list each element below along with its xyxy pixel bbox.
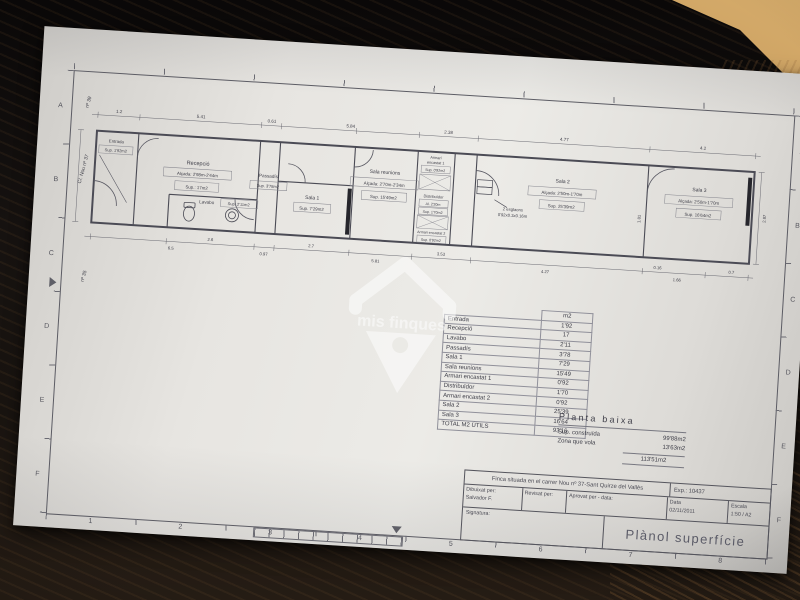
grid-letter-right-e: E [777,443,789,451]
dim-top-3: 0.61 [267,118,277,124]
dim-bottom-upper-2: 2.7 [308,243,315,248]
room-recepcio-name: Recepció [186,160,209,167]
street-name-label: C/. Nou nº 37 [77,154,91,185]
steps [476,180,509,208]
toilet-icon [183,202,195,221]
grid-letter-left-c: C [45,250,57,258]
grid-letter-left-f: F [31,470,43,478]
sink-icon [225,208,239,222]
dim-right-1: 2.87 [762,214,768,223]
drawing-sheet: A B C D E F A B C D E F 1 2 3 4 5 6 7 8 [13,26,800,574]
escala-value: 1:50 / A2 [730,510,767,520]
house-roof-icon [355,260,452,314]
dim-top-6: 4.77 [560,137,570,143]
grid-letter-right-a: A [796,149,800,157]
room-sala1-sup: Sup. 7'29m2 [299,206,324,213]
dim-bottom-upper-4: 0.16 [653,265,662,271]
grid-number-7: 7 [623,552,637,560]
room-armari2-name: Armari encastat 2 [417,230,445,236]
room-passadis-sup: Sup. 3'78m2 [257,183,280,189]
room-armari1-name1: Armari [430,156,442,161]
room-reunions-name: Sala reunions [369,169,400,177]
room-distribuidor-name: Distribuïdor [423,193,444,199]
escala-cell: Escala 1:50 / A2 [728,501,770,526]
planta-baixa-summary: Planta baixa Sup. construïda 99'88m2 Zon… [556,411,687,468]
dim-bottom-upper-1: 2.6 [207,237,214,242]
revisat-cell: Revisat per: [522,488,568,513]
grid-number-6: 6 [533,546,547,554]
grid-letter-left-b: B [50,176,62,184]
room-sala3-sup: Sup. 16'64m2 [684,212,712,219]
grid-letter-right-d: D [782,369,794,377]
room-sala1-name: Sala 1 [305,195,320,202]
dim-top-1: 1.2 [116,109,123,114]
dim-top-4: 5.84 [346,123,356,129]
grid-number-1: 1 [83,518,97,526]
sup-construida-label: Sup. construïda [558,429,600,438]
room-lavabo-name: Lavabo [199,199,215,205]
room-recepcio-sup: Sup.: 17m2 [185,184,208,190]
grid-letter-right-b: B [791,222,800,230]
room-lavabo-sup: Sup. 2'11m2 [228,201,251,207]
mis-finques-watermark: mis finques [332,241,471,399]
street-number-39: nº 39 [85,96,94,109]
fold-mark-bottom-icon [391,526,401,534]
zona-vola-label: Zona que vola [557,438,595,446]
revisat-label: Revisat per: [524,489,564,500]
grid-letter-right-f: F [773,517,785,525]
dibuixat-cell: Dibuixat per: Salvador F. [463,484,523,510]
grid-number-5: 5 [444,540,458,548]
dim-bottom-lower-1: 6.5 [168,245,175,250]
grid-number-8: 8 [713,557,727,565]
grid-letter-right-c: C [787,296,799,304]
fold-mark-left-icon [49,277,57,287]
grid-number-2: 2 [173,523,187,531]
grid-letter-left-a: A [54,102,66,110]
room-sala2-sup: Sup. 25'39m2 [548,203,576,210]
zona-vola-value: 13'63m2 [662,445,685,452]
dim-right-2: 1.81 [636,214,642,223]
room-armari1-name2: encastat 1 [427,160,445,165]
dim-top-2: 5.41 [197,114,207,120]
photo-of-floor-plan: A B C D E F A B C D E F 1 2 3 4 5 6 7 8 [0,0,800,600]
sup-construida-value: 99'88m2 [663,436,686,443]
steps-note-line2: 0'92x0.3x0.16m [498,212,528,219]
room-sala3-name: Sala 3 [692,187,707,194]
grid-letter-left-d: D [40,323,52,331]
location-pin-icon [362,331,436,395]
room-entrada-name: Entrada [109,138,125,144]
dim-top-5: 2.38 [444,129,454,135]
room-reunions-sup: Sup. 15'49m2 [370,194,398,201]
room-sala2-name: Sala 2 [555,179,570,186]
dim-bottom-lower-5: 1.66 [673,277,682,283]
dim-bottom-upper-5: 0.7 [728,270,735,275]
dim-bottom-lower-4: 4.27 [541,269,550,275]
dim-bottom-lower-2: 0.97 [259,251,268,257]
dim-top-7: 4.2 [700,146,707,151]
street-number-35: nº 35 [80,270,89,283]
room-passadis-name: Passadís [259,173,279,179]
room-distribuidor-alcada: Al. 2'20m [425,202,440,207]
grid-letter-left-e: E [36,396,48,404]
data-cell: Data 02/11/2011 [667,497,730,523]
room-entrada-sup: Sup. 1'92m2 [104,147,127,153]
